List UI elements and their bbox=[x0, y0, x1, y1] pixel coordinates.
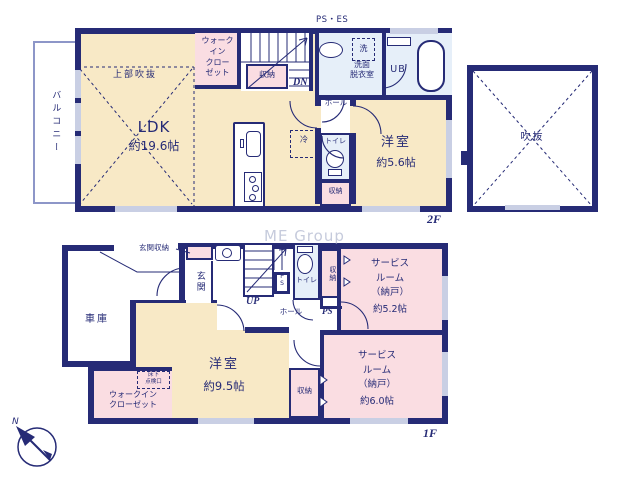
window-sr1-east bbox=[442, 276, 448, 320]
washroom-label: 洗面 脱衣室 bbox=[340, 60, 384, 81]
window-void-south bbox=[505, 205, 560, 210]
void-box-notch bbox=[461, 151, 469, 165]
pipe-space-label: PS bbox=[322, 305, 333, 318]
ldk-size-label: 約19.6帖 bbox=[104, 138, 204, 155]
balcony-label: バルコニー bbox=[33, 41, 77, 204]
entrance-storage-label: 玄関収納 bbox=[139, 243, 169, 254]
bedroom95-name-label: 洋室 bbox=[164, 356, 284, 374]
service-room2-size-label: 約6.0帖 bbox=[327, 395, 427, 408]
toilet-tank-icon-1f bbox=[297, 246, 313, 253]
dn-label: DN bbox=[293, 76, 307, 90]
wall-hall1f-bottom bbox=[245, 327, 289, 333]
window-sr2-south bbox=[350, 418, 408, 424]
bath-counter-icon bbox=[387, 37, 411, 46]
stairs-1f bbox=[243, 243, 274, 297]
window-bedroom95-south bbox=[198, 418, 254, 424]
wall-genkan-left bbox=[179, 243, 185, 305]
floor-hatch-label: 床下 点検口 bbox=[137, 372, 170, 386]
north-label: N bbox=[12, 417, 19, 427]
wall-garage-top bbox=[62, 245, 114, 251]
wall-garage-left bbox=[62, 245, 68, 367]
entrance-label: 玄関 bbox=[186, 261, 213, 303]
toilet-1f-label: トイレ bbox=[293, 276, 320, 286]
sink-bowl-icon-1f bbox=[222, 248, 232, 258]
stove-burner-icon-3 bbox=[249, 194, 256, 201]
void-label: 吹抜 bbox=[467, 131, 598, 145]
bathtub-icon bbox=[417, 40, 445, 92]
window-bath-north bbox=[390, 28, 438, 34]
stove-burner-icon-1 bbox=[249, 176, 256, 183]
window-bedroom56-south bbox=[362, 206, 420, 212]
floorplan-canvas: N PS・ES バルコニー 上部吹抜 LDK 約19.6帖 ウォーク イン クロ… bbox=[0, 0, 640, 480]
toilet-bowl-icon-2f bbox=[326, 150, 344, 168]
bedroom56-name-label: 洋室 bbox=[346, 134, 446, 152]
ldk-name-label: LDK bbox=[104, 117, 204, 138]
fridge-label: 冷 bbox=[290, 134, 318, 145]
watermark: ME Group bbox=[264, 226, 345, 247]
compass-icon bbox=[16, 426, 56, 466]
up-label: UP bbox=[246, 295, 259, 309]
service-room1-name-label: サービス ルーム （納戸） bbox=[340, 257, 440, 301]
floor2-label: 2F bbox=[427, 211, 441, 228]
storage-mid-label: 収納 bbox=[289, 386, 320, 397]
washbasin-icon bbox=[319, 42, 343, 58]
toilet-tank-icon-2f bbox=[328, 169, 342, 176]
toilet-bowl-icon-1f bbox=[297, 254, 313, 274]
service-room2-name-label: サービス ルーム （納戸） bbox=[327, 349, 427, 393]
room-entrance-storage bbox=[186, 245, 213, 260]
wall-1f-right bbox=[442, 243, 448, 424]
stove-burner-icon-2 bbox=[252, 185, 259, 192]
window-ldk-south bbox=[115, 206, 177, 212]
pipe-space-box-label: P S bbox=[274, 273, 290, 287]
floor1-label: 1F bbox=[423, 425, 437, 442]
bedroom56-size-label: 約5.6帖 bbox=[346, 155, 446, 170]
service-room1-size-label: 約5.2帖 bbox=[340, 303, 440, 316]
storage-right-2f-label: 収納 bbox=[320, 187, 351, 197]
unit-bath-label: UB bbox=[380, 63, 416, 76]
ps-es-label: PS・ES bbox=[316, 15, 348, 27]
kitchen-faucet-icon bbox=[240, 139, 244, 148]
walkin-closet-1f-label: ウォークイン クローゼット bbox=[95, 390, 171, 411]
laundry-label: 洗 bbox=[352, 43, 375, 54]
window-sr2-east bbox=[442, 352, 448, 396]
window-bedroom56-east bbox=[446, 120, 452, 178]
hall-1f-label: ホール bbox=[272, 307, 310, 318]
bedroom95-size-label: 約9.5帖 bbox=[164, 378, 284, 394]
walkin-closet-2f-label: ウォーク イン クロー ゼット bbox=[196, 36, 239, 79]
stair-storage-label: 収納 bbox=[246, 69, 288, 80]
garage-boundary-line bbox=[100, 252, 184, 272]
hall-1f-lower bbox=[289, 330, 320, 368]
kitchen-sink-icon bbox=[246, 131, 261, 157]
upper-void-label: 上部吹抜 bbox=[85, 69, 185, 82]
hall-2f-label: ホール bbox=[318, 98, 354, 109]
garage-label: 車庫 bbox=[72, 313, 122, 327]
